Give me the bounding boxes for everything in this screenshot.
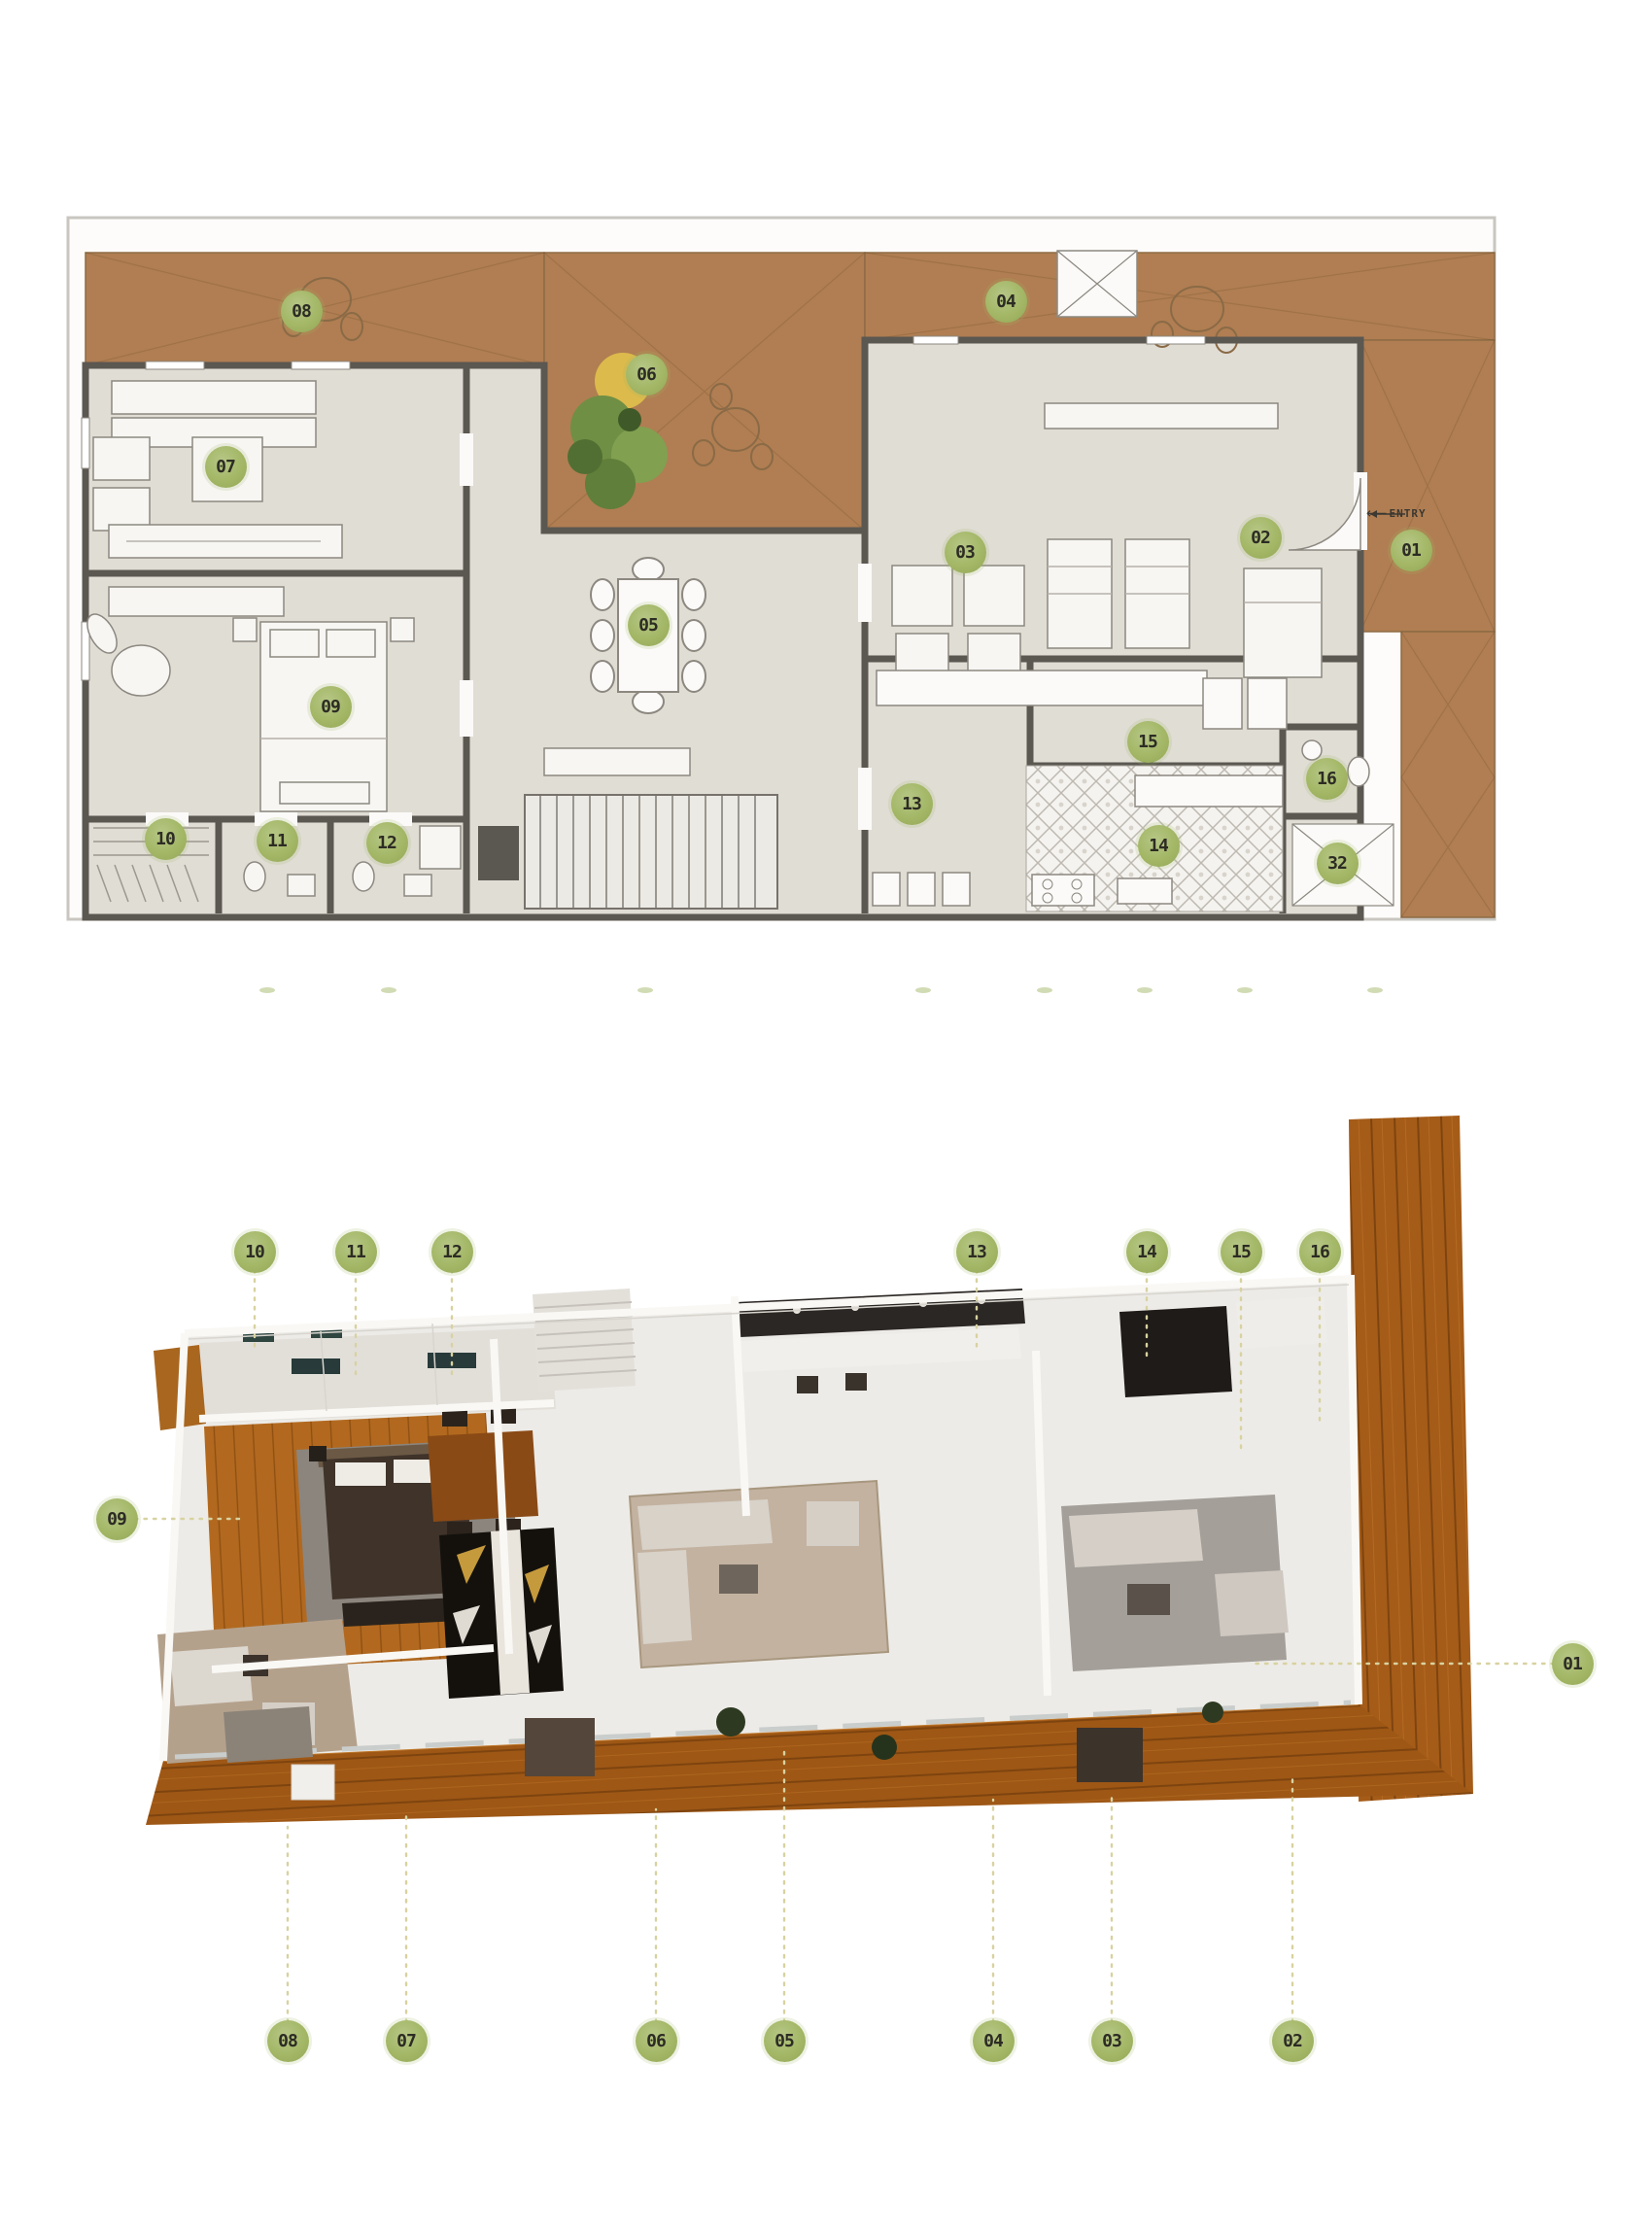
- plan-marker-32: 32: [1317, 842, 1359, 884]
- view3d-marker-05: 05: [764, 2020, 806, 2062]
- view3d-marker-12: 12: [431, 1231, 473, 1273]
- plan-marker-03: 03: [945, 532, 986, 573]
- view3d-marker-09: 09: [96, 1498, 138, 1540]
- lounge-sofa: [170, 1646, 253, 1706]
- view3d-marker-15: 15: [1221, 1231, 1262, 1273]
- floorplan-sheet: ⟵ ENTRY 01020304050607080910111213141516…: [0, 0, 1652, 2235]
- view3d-marker-10: 10: [234, 1231, 276, 1273]
- faded-dot-7: [1367, 987, 1383, 993]
- dining-table-3d: [428, 1430, 538, 1522]
- plan-marker-11: 11: [257, 820, 298, 862]
- sectional-a1: [637, 1499, 773, 1550]
- coffee-table-a: [719, 1564, 758, 1594]
- deck-lounger: [224, 1706, 313, 1763]
- wardrobe-3d: [1119, 1306, 1232, 1397]
- sectional-a2: [637, 1550, 692, 1644]
- view-3d: [146, 1116, 1473, 1825]
- view3d-marker-11: 11: [335, 1231, 377, 1273]
- plan-marker-15: 15: [1127, 721, 1169, 763]
- plan-marker-05: 05: [628, 604, 670, 646]
- armchair-a: [807, 1501, 859, 1546]
- faded-dot-2: [637, 987, 653, 993]
- faded-dot-5: [1137, 987, 1153, 993]
- bath-counter-3d: [1236, 1296, 1327, 1349]
- plan-marker-06: 06: [626, 354, 668, 395]
- view3d-marker-16: 16: [1299, 1231, 1341, 1273]
- vanity-1: [292, 1358, 340, 1374]
- plant-3: [1202, 1702, 1223, 1723]
- plant-2: [872, 1735, 897, 1760]
- view3d-marker-02: 02: [1272, 2020, 1314, 2062]
- entry-label: ⟵ ENTRY: [1366, 506, 1427, 521]
- plan-marker-07: 07: [205, 446, 247, 488]
- sofa-b2: [1215, 1570, 1289, 1636]
- faded-dot-3: [915, 987, 931, 993]
- deck-chair-2: [1077, 1728, 1143, 1782]
- plan-marker-01: 01: [1391, 530, 1432, 571]
- view3d-marker-08: 08: [267, 2020, 309, 2062]
- view3d-marker-04: 04: [973, 2020, 1015, 2062]
- plan-marker-02: 02: [1240, 517, 1282, 559]
- plan-marker-16: 16: [1306, 758, 1348, 800]
- view3d-marker-01: 01: [1552, 1643, 1594, 1685]
- coffee-table-b: [1127, 1584, 1170, 1615]
- console: [544, 748, 690, 775]
- faded-dot-6: [1237, 987, 1253, 993]
- pillow-1: [335, 1462, 386, 1486]
- plan-marker-10: 10: [145, 818, 187, 860]
- view3d-marker-13: 13: [956, 1231, 998, 1273]
- plant-1: [716, 1707, 745, 1736]
- view3d-marker-14: 14: [1126, 1231, 1168, 1273]
- plan-marker-09: 09: [310, 686, 352, 728]
- view3d-marker-06: 06: [636, 2020, 677, 2062]
- faded-dot-4: [1037, 987, 1052, 993]
- entry-label-text: ENTRY: [1390, 507, 1427, 520]
- deck-right-plank: [1349, 1116, 1473, 1802]
- plan-marker-13: 13: [891, 783, 933, 825]
- deck-chair-1: [525, 1718, 595, 1776]
- deck-cube: [292, 1765, 334, 1800]
- view3d-marker-07: 07: [386, 2020, 428, 2062]
- plan-marker-14: 14: [1138, 825, 1180, 867]
- sofa-b1: [1069, 1509, 1203, 1567]
- view3d-marker-03: 03: [1091, 2020, 1133, 2062]
- entry-arrow-icon: ⟵: [1366, 506, 1388, 521]
- plan-marker-08: 08: [281, 291, 323, 332]
- plan-marker-12: 12: [366, 822, 408, 864]
- floorplan-drawing: [0, 0, 1652, 2235]
- plan-2d: [68, 218, 1495, 919]
- faded-dot-1: [381, 987, 396, 993]
- terrace-hatch-box: [1057, 251, 1137, 317]
- plan-marker-04: 04: [985, 281, 1027, 323]
- faded-dot-0: [259, 987, 275, 993]
